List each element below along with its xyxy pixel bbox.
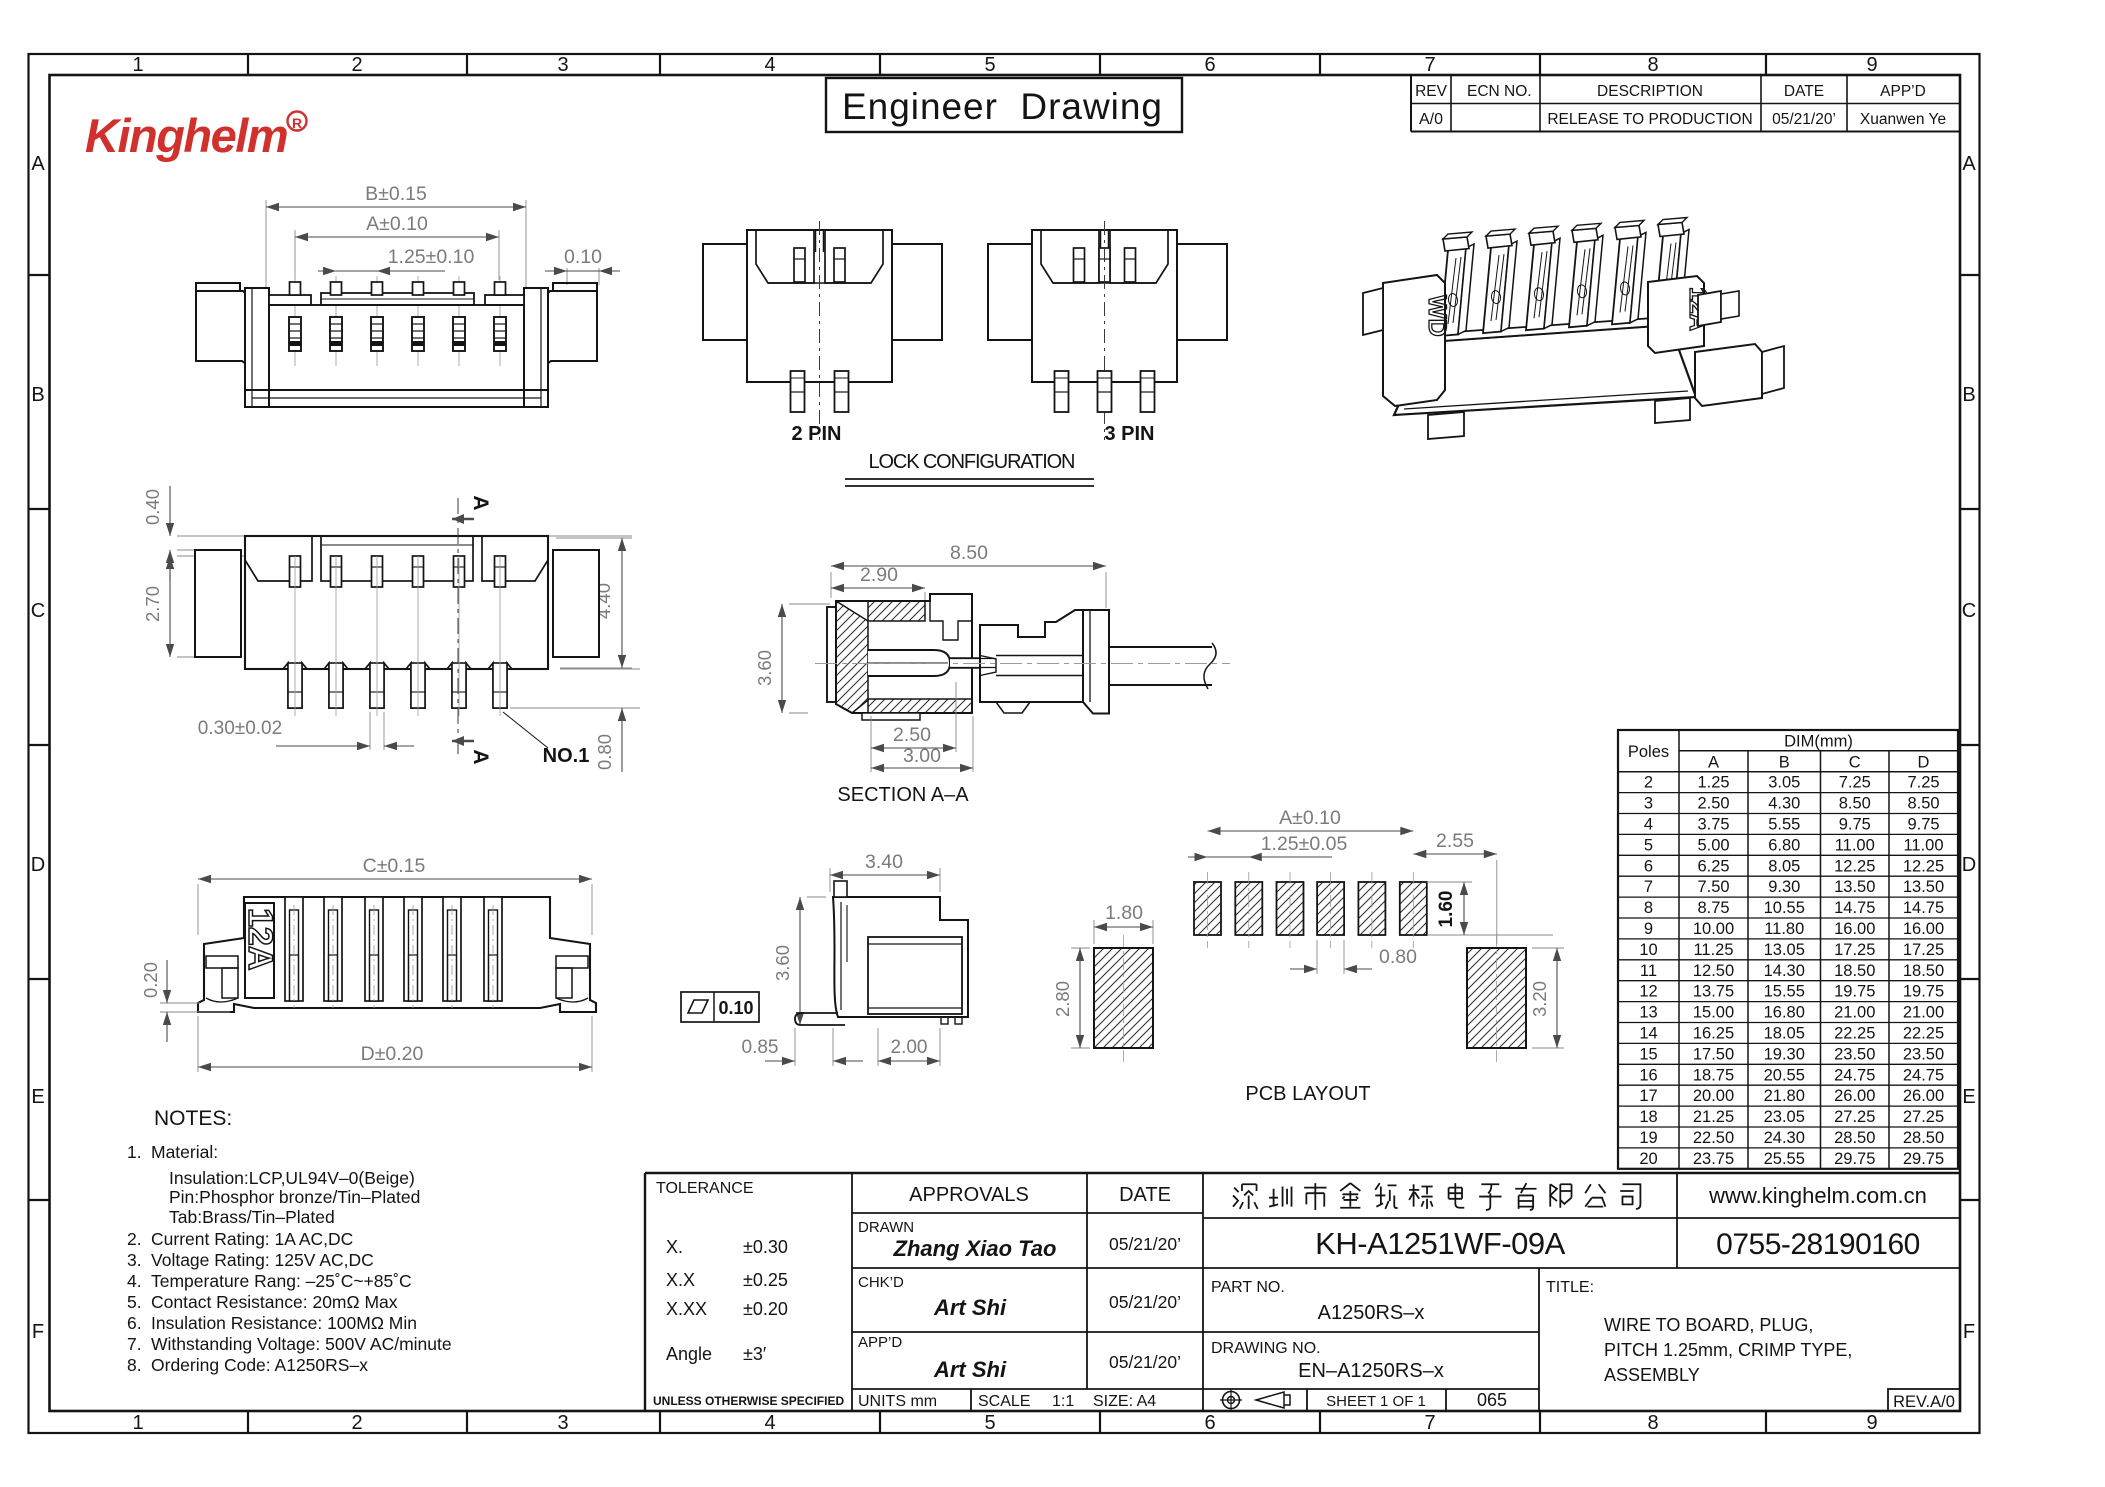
svg-text:9: 9	[1644, 920, 1653, 938]
svg-text:Pin:Phosphor bronze/Tin–Plate: Pin:Phosphor bronze/Tin–Plated	[169, 1187, 420, 1207]
svg-text:WD: WD	[1423, 295, 1451, 337]
svg-text:A: A	[1962, 153, 1976, 175]
svg-text:Kinghelm: Kinghelm	[85, 109, 287, 162]
svg-text:3 PIN: 3 PIN	[1104, 423, 1154, 445]
svg-text:25.55: 25.55	[1764, 1150, 1805, 1168]
svg-text:20.00: 20.00	[1693, 1087, 1734, 1105]
svg-text:22.25: 22.25	[1834, 1024, 1875, 1042]
svg-text:9.75: 9.75	[1907, 815, 1939, 833]
svg-text:UNITS mm: UNITS mm	[858, 1393, 937, 1410]
svg-text:1.25: 1.25	[1697, 774, 1729, 792]
svg-text:D: D	[1918, 754, 1930, 772]
svg-text:4: 4	[764, 1412, 775, 1434]
svg-text:Contact Resistance: 20mΩ Ma: Contact Resistance: 20mΩ Max	[151, 1292, 398, 1312]
svg-text:PITCH 1.25mm, CRIMP TYPE,: PITCH 1.25mm, CRIMP TYPE,	[1604, 1340, 1852, 1360]
svg-text:11: 11	[1640, 962, 1657, 980]
svg-text:0.10: 0.10	[564, 246, 602, 268]
svg-text:05/21/20’: 05/21/20’	[1109, 1292, 1181, 1312]
svg-text:0.40: 0.40	[142, 489, 163, 525]
svg-text:5: 5	[984, 54, 995, 76]
svg-text:0.80: 0.80	[594, 734, 615, 770]
svg-text:5.55: 5.55	[1768, 815, 1800, 833]
svg-text:19: 19	[1639, 1129, 1657, 1147]
svg-text:Voltage Rating: 125V AC,DC: Voltage Rating: 125V AC,DC	[151, 1250, 374, 1270]
svg-text:DIM(mm): DIM(mm)	[1784, 733, 1853, 751]
svg-text:18.50: 18.50	[1834, 962, 1875, 980]
svg-text:19.30: 19.30	[1764, 1045, 1805, 1063]
svg-text:17: 17	[1639, 1087, 1657, 1105]
svg-text:2: 2	[351, 1412, 362, 1434]
svg-text:8.75: 8.75	[1697, 899, 1729, 917]
svg-text:0.80: 0.80	[1379, 946, 1417, 968]
svg-text:15.00: 15.00	[1693, 1004, 1734, 1022]
svg-text:Zhang Xiao Tao: Zhang Xiao Tao	[893, 1236, 1057, 1261]
svg-text:KH-A1251WF-09A: KH-A1251WF-09A	[1315, 1226, 1566, 1261]
svg-text:DRAWN: DRAWN	[858, 1219, 914, 1236]
svg-text:APP’D: APP’D	[1880, 83, 1926, 100]
svg-text:1: 1	[132, 54, 143, 76]
svg-text:24.30: 24.30	[1764, 1129, 1805, 1147]
svg-text:www.kinghelm.com.cn: www.kinghelm.com.cn	[1708, 1183, 1927, 1208]
svg-text:0.30±0.02: 0.30±0.02	[198, 718, 282, 739]
svg-text:9: 9	[1866, 1412, 1877, 1434]
svg-text:8.: 8.	[127, 1355, 142, 1375]
svg-text:7.25: 7.25	[1907, 774, 1939, 792]
svg-text:DATE: DATE	[1119, 1184, 1171, 1206]
svg-text:6.: 6.	[127, 1313, 142, 1333]
svg-text:X.XX: X.XX	[666, 1299, 707, 1319]
svg-text:12: 12	[1639, 983, 1657, 1001]
svg-text:1.: 1.	[127, 1142, 142, 1162]
svg-text:18: 18	[1639, 1108, 1657, 1126]
svg-text:8: 8	[1647, 54, 1658, 76]
svg-text:E: E	[1962, 1086, 1975, 1108]
svg-text:6: 6	[1204, 1412, 1215, 1434]
svg-text:Temperature Rang: –25˚C~+85˚: Temperature Rang: –25˚C~+85˚C	[151, 1271, 412, 1291]
svg-text:065: 065	[1477, 1390, 1507, 1410]
svg-text:7: 7	[1644, 878, 1653, 896]
svg-text:1:1: 1:1	[1052, 1393, 1074, 1410]
svg-text:4: 4	[1644, 815, 1653, 833]
svg-text:19.75: 19.75	[1903, 983, 1944, 1001]
svg-text:7.50: 7.50	[1697, 878, 1729, 896]
svg-text:6.80: 6.80	[1768, 836, 1800, 854]
svg-text:3.60: 3.60	[754, 650, 775, 686]
svg-text:A: A	[469, 495, 492, 510]
svg-text:B±0.15: B±0.15	[365, 183, 427, 205]
svg-text:2.: 2.	[127, 1229, 142, 1249]
svg-text:20: 20	[1639, 1150, 1657, 1168]
svg-text:24.75: 24.75	[1834, 1066, 1875, 1084]
svg-text:3: 3	[557, 1412, 568, 1434]
svg-text:2.90: 2.90	[860, 564, 898, 586]
svg-text:13: 13	[1639, 1004, 1657, 1022]
svg-text:15: 15	[1639, 1045, 1657, 1063]
svg-text:C±0.15: C±0.15	[363, 855, 426, 877]
svg-text:Art Shi: Art Shi	[933, 1295, 1007, 1320]
svg-text:1.80: 1.80	[1105, 902, 1143, 924]
svg-text:13.75: 13.75	[1693, 983, 1734, 1001]
svg-text:3.40: 3.40	[865, 851, 903, 873]
svg-text:SECTION A–A: SECTION A–A	[837, 784, 969, 806]
svg-text:ASSEMBLY: ASSEMBLY	[1604, 1365, 1700, 1385]
svg-text:C: C	[1962, 600, 1976, 622]
svg-text:9.30: 9.30	[1768, 878, 1800, 896]
svg-text:14.75: 14.75	[1834, 899, 1875, 917]
svg-text:APP’D: APP’D	[858, 1334, 902, 1351]
svg-text:17.25: 17.25	[1903, 941, 1944, 959]
svg-text:05/21/20’: 05/21/20’	[1109, 1234, 1181, 1254]
svg-text:Insulation:LCP,UL94V–0(Beige): Insulation:LCP,UL94V–0(Beige)	[169, 1168, 415, 1188]
svg-text:23.50: 23.50	[1903, 1045, 1944, 1063]
svg-text:12.50: 12.50	[1693, 962, 1734, 980]
svg-text:05/21/20’: 05/21/20’	[1109, 1352, 1181, 1372]
svg-text:F: F	[32, 1321, 44, 1343]
svg-text:22.25: 22.25	[1903, 1024, 1944, 1042]
svg-text:18.75: 18.75	[1693, 1066, 1734, 1084]
svg-text:11.80: 11.80	[1764, 920, 1804, 938]
svg-text:13.05: 13.05	[1764, 941, 1805, 959]
svg-text:ECN NO.: ECN NO.	[1467, 83, 1532, 100]
svg-text:1.25±0.10: 1.25±0.10	[388, 246, 475, 268]
svg-text:LOCK CONFIGURATION: LOCK CONFIGURATION	[869, 451, 1076, 473]
svg-text:REV: REV	[1415, 83, 1448, 100]
svg-text:0755-28190160: 0755-28190160	[1716, 1228, 1920, 1261]
svg-text:1.25±0.05: 1.25±0.05	[1261, 833, 1348, 855]
svg-text:24.75: 24.75	[1903, 1066, 1944, 1084]
svg-text:PART NO.: PART NO.	[1211, 1279, 1285, 1296]
svg-text:3.75: 3.75	[1697, 815, 1729, 833]
svg-text:Material:: Material:	[151, 1142, 218, 1162]
svg-text:4: 4	[764, 54, 775, 76]
svg-text:2 PIN: 2 PIN	[791, 423, 841, 445]
svg-text:6: 6	[1204, 54, 1215, 76]
svg-text:8: 8	[1647, 1412, 1658, 1434]
svg-text:Current Rating: 1A AC,DC: Current Rating: 1A AC,DC	[151, 1229, 353, 1249]
svg-text:26.00: 26.00	[1903, 1087, 1944, 1105]
svg-text:16.00: 16.00	[1903, 920, 1944, 938]
svg-text:18.05: 18.05	[1764, 1024, 1805, 1042]
svg-text:2: 2	[1644, 774, 1653, 792]
svg-text:APPROVALS: APPROVALS	[909, 1184, 1029, 1206]
svg-text:R: R	[292, 115, 302, 131]
svg-text:3: 3	[1644, 795, 1653, 813]
svg-text:1: 1	[132, 1412, 143, 1434]
svg-text:TITLE:: TITLE:	[1546, 1279, 1594, 1296]
svg-text:TOLERANCE: TOLERANCE	[656, 1180, 754, 1197]
svg-text:WIRE TO BOARD, PLUG,: WIRE TO BOARD, PLUG,	[1604, 1315, 1813, 1335]
svg-text:29.75: 29.75	[1903, 1150, 1944, 1168]
svg-text:C: C	[1849, 754, 1861, 772]
svg-text:±0.25: ±0.25	[743, 1270, 788, 1290]
svg-text:3.: 3.	[127, 1250, 142, 1270]
svg-text:17.50: 17.50	[1693, 1045, 1734, 1063]
svg-text:A: A	[31, 153, 45, 175]
svg-text:15.55: 15.55	[1764, 983, 1805, 1001]
svg-text:3.60: 3.60	[772, 945, 793, 981]
svg-text:8.50: 8.50	[1839, 795, 1871, 813]
svg-text:27.25: 27.25	[1834, 1108, 1875, 1126]
svg-text:10: 10	[1639, 941, 1657, 959]
svg-text:3.00: 3.00	[903, 745, 941, 767]
svg-text:E: E	[31, 1086, 44, 1108]
svg-text:B: B	[31, 384, 44, 406]
svg-text:5.00: 5.00	[1697, 836, 1729, 854]
svg-text:10.55: 10.55	[1764, 899, 1805, 917]
svg-text:16.25: 16.25	[1693, 1024, 1734, 1042]
svg-text:18.50: 18.50	[1903, 962, 1944, 980]
svg-text:D: D	[31, 854, 45, 876]
svg-text:B: B	[1962, 384, 1975, 406]
svg-text:±0.20: ±0.20	[743, 1299, 788, 1319]
svg-text:11.00: 11.00	[1835, 836, 1875, 854]
svg-text:5.: 5.	[127, 1292, 142, 1312]
svg-text:REV.A/0: REV.A/0	[1893, 1393, 1955, 1411]
svg-text:Withstanding Voltage: 500V: Withstanding Voltage: 500V AC/minute	[151, 1334, 452, 1354]
svg-text:Angle: Angle	[666, 1344, 712, 1364]
svg-text:±0.30: ±0.30	[743, 1237, 788, 1257]
svg-text:DATE: DATE	[1784, 83, 1824, 100]
svg-text:2.55: 2.55	[1436, 830, 1474, 852]
svg-text:0.20: 0.20	[140, 962, 161, 998]
svg-text:7: 7	[1424, 54, 1435, 76]
svg-text:12A: 12A	[241, 908, 279, 970]
svg-text:2.50: 2.50	[1697, 795, 1729, 813]
svg-text:8.50: 8.50	[950, 542, 988, 564]
svg-text:DRAWING NO.: DRAWING NO.	[1211, 1340, 1321, 1357]
svg-text:16: 16	[1639, 1066, 1657, 1084]
svg-text:EN–A1250RS–x: EN–A1250RS–x	[1298, 1360, 1444, 1382]
svg-text:Engineer Drawing: Engineer Drawing	[842, 86, 1162, 127]
svg-text:12.25: 12.25	[1834, 857, 1875, 875]
svg-text:3: 3	[557, 54, 568, 76]
svg-text:A1250RS–x: A1250RS–x	[1318, 1302, 1425, 1324]
svg-text:10.00: 10.00	[1693, 920, 1734, 938]
svg-text:11.25: 11.25	[1693, 941, 1733, 959]
svg-text:5: 5	[984, 1412, 995, 1434]
svg-text:23.05: 23.05	[1764, 1108, 1805, 1126]
svg-text:28.50: 28.50	[1903, 1129, 1944, 1147]
svg-text:NOTES:: NOTES:	[154, 1107, 232, 1130]
svg-text:28.50: 28.50	[1834, 1129, 1875, 1147]
svg-text:4.: 4.	[127, 1271, 142, 1291]
svg-text:12.25: 12.25	[1903, 857, 1944, 875]
svg-text:PCB LAYOUT: PCB LAYOUT	[1245, 1083, 1370, 1105]
svg-text:14: 14	[1639, 1024, 1657, 1042]
svg-text:8: 8	[1644, 899, 1653, 917]
svg-text:22.50: 22.50	[1693, 1129, 1734, 1147]
svg-text:CHK’D: CHK’D	[858, 1274, 904, 1291]
svg-text:Art Shi: Art Shi	[933, 1357, 1007, 1382]
svg-text:2: 2	[351, 54, 362, 76]
svg-text:2.80: 2.80	[1052, 981, 1073, 1017]
svg-text:23.75: 23.75	[1693, 1150, 1734, 1168]
svg-text:21.00: 21.00	[1903, 1004, 1944, 1022]
svg-text:11.00: 11.00	[1903, 836, 1943, 854]
svg-text:0.85: 0.85	[742, 1037, 779, 1058]
svg-text:Tab:Brass/Tin–Plated: Tab:Brass/Tin–Plated	[169, 1207, 335, 1227]
svg-text:F: F	[1963, 1321, 1975, 1343]
svg-text:A±0.10: A±0.10	[366, 213, 428, 235]
svg-text:RELEASE TO PRODUCTION: RELEASE TO PRODUCTION	[1547, 111, 1752, 128]
svg-text:6.25: 6.25	[1697, 857, 1729, 875]
svg-text:21.25: 21.25	[1693, 1108, 1734, 1126]
svg-text:X.: X.	[666, 1237, 683, 1257]
svg-text:8.05: 8.05	[1768, 857, 1800, 875]
svg-text:7.: 7.	[127, 1334, 142, 1354]
svg-text:0.10: 0.10	[718, 998, 753, 1018]
svg-text:16.80: 16.80	[1764, 1004, 1805, 1022]
svg-text:20.55: 20.55	[1764, 1066, 1805, 1084]
svg-text:Insulation Resistance: 100MΩ: Insulation Resistance: 100MΩ Min	[151, 1313, 417, 1333]
svg-text:D: D	[1962, 854, 1976, 876]
svg-text:2.00: 2.00	[891, 1037, 928, 1058]
svg-text:5: 5	[1644, 836, 1653, 854]
svg-text:Xuanwen Ye: Xuanwen Ye	[1860, 111, 1946, 128]
svg-text:13.50: 13.50	[1834, 878, 1875, 896]
svg-text:UNLESS OTHERWISE SPECIFIED: UNLESS OTHERWISE SPECIFIED	[653, 1394, 844, 1408]
svg-text:±3′: ±3′	[743, 1344, 767, 1364]
svg-text:17.25: 17.25	[1834, 941, 1875, 959]
svg-text:X.X: X.X	[666, 1270, 695, 1290]
svg-text:19.75: 19.75	[1834, 983, 1875, 1001]
svg-text:Poles: Poles	[1628, 743, 1669, 761]
svg-text:SIZE: A4: SIZE: A4	[1093, 1393, 1156, 1410]
svg-text:B: B	[1779, 754, 1790, 772]
svg-text:6: 6	[1644, 857, 1653, 875]
svg-text:NO.1: NO.1	[543, 745, 590, 767]
svg-text:7: 7	[1424, 1412, 1435, 1434]
svg-text:3.05: 3.05	[1768, 774, 1800, 792]
svg-text:27.25: 27.25	[1903, 1108, 1944, 1126]
svg-text:Ordering Code: A1250RS–x: Ordering Code: A1250RS–x	[151, 1355, 368, 1375]
svg-text:4.30: 4.30	[1768, 795, 1800, 813]
svg-text:14.75: 14.75	[1903, 899, 1944, 917]
svg-text:9: 9	[1866, 54, 1877, 76]
svg-text:21.80: 21.80	[1764, 1087, 1805, 1105]
svg-text:21.00: 21.00	[1834, 1004, 1875, 1022]
svg-text:C: C	[31, 600, 45, 622]
svg-text:8.50: 8.50	[1907, 795, 1939, 813]
svg-text:13.50: 13.50	[1903, 878, 1944, 896]
svg-text:A/0: A/0	[1419, 111, 1443, 128]
svg-text:1.60: 1.60	[1436, 891, 1457, 928]
svg-text:7.25: 7.25	[1839, 774, 1871, 792]
svg-text:SCALE: SCALE	[978, 1393, 1030, 1410]
svg-text:A: A	[1708, 754, 1719, 772]
svg-text:A: A	[469, 749, 492, 764]
svg-text:A±0.10: A±0.10	[1279, 807, 1341, 829]
svg-text:SHEET 1 OF 1: SHEET 1 OF 1	[1326, 1393, 1426, 1410]
svg-text:14.30: 14.30	[1764, 962, 1805, 980]
svg-text:D±0.20: D±0.20	[361, 1043, 424, 1065]
svg-text:26.00: 26.00	[1834, 1087, 1875, 1105]
svg-text:9.75: 9.75	[1839, 815, 1871, 833]
svg-text:3.20: 3.20	[1529, 981, 1550, 1017]
svg-text:16.00: 16.00	[1834, 920, 1875, 938]
svg-text:23.50: 23.50	[1834, 1045, 1875, 1063]
svg-text:2.70: 2.70	[142, 586, 163, 622]
svg-text:2.50: 2.50	[893, 724, 931, 746]
svg-text:29.75: 29.75	[1834, 1150, 1875, 1168]
svg-text:DESCRIPTION: DESCRIPTION	[1597, 83, 1703, 100]
svg-text:05/21/20’: 05/21/20’	[1772, 111, 1836, 128]
